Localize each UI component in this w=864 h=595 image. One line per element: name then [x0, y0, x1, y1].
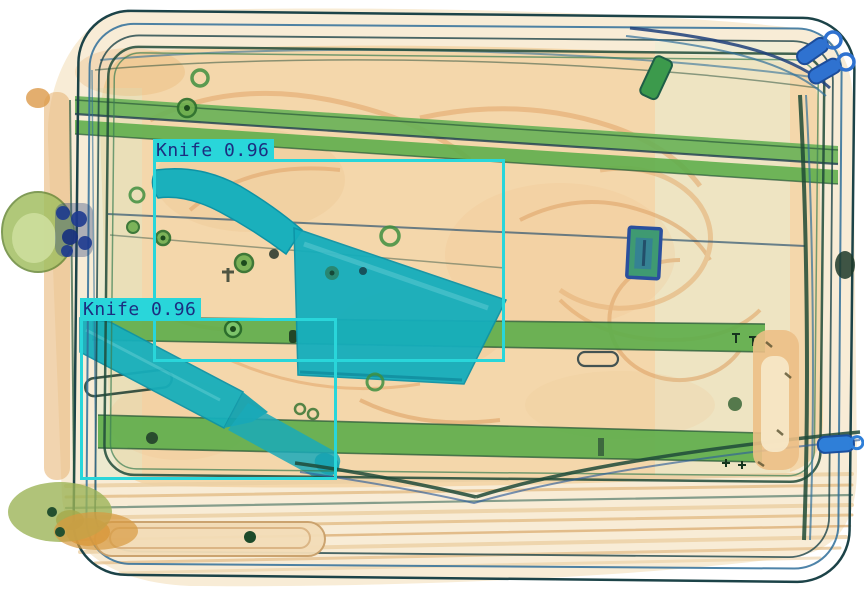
xray-scan-viewport: Knife 0.96Knife 0.96 — [0, 0, 864, 595]
detection-label-2: Knife 0.96 — [80, 298, 201, 321]
detection-label-1: Knife 0.96 — [153, 139, 274, 162]
detection-box-2: Knife 0.96 — [80, 318, 337, 480]
detections-layer: Knife 0.96Knife 0.96 — [0, 0, 864, 595]
